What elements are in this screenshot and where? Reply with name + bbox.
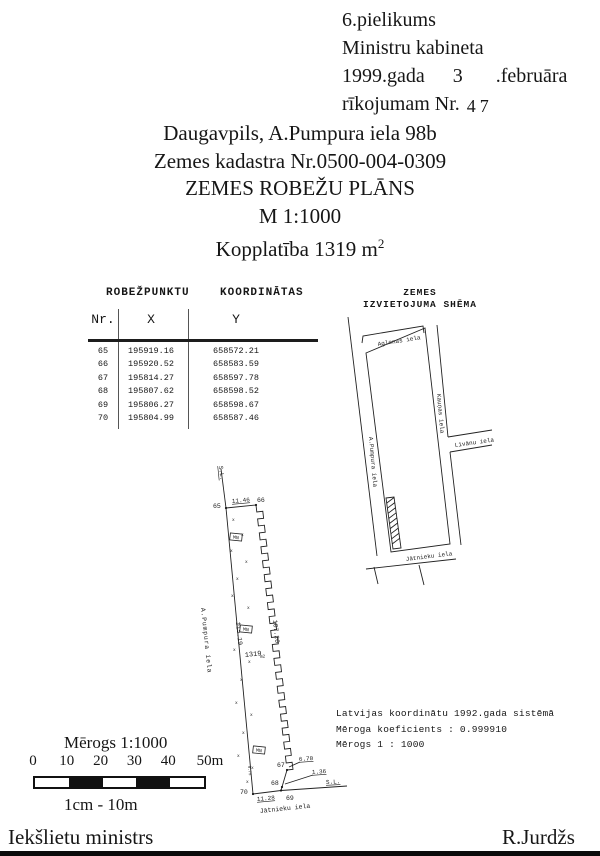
coordinates-table: ROBEŽPUNKTU KOORDINĀTAS Nr. X Y 65195919… (88, 285, 318, 433)
mn-label: MN (243, 627, 250, 634)
dimension-68-69: 1.36 (312, 768, 327, 776)
point-label-69: 69 (286, 795, 294, 802)
street-continuation-lines (374, 565, 424, 585)
table-cell: 658583.59 (200, 359, 272, 369)
scale-bar: Mērogs 1:1000 0 10 20 30 40 50m 1cm - 10… (30, 733, 250, 818)
scale-bar-graphic (33, 776, 206, 789)
plan-street-label-south: Jātnieku iela (259, 803, 310, 815)
mn-label: MN (256, 748, 263, 755)
table-row: 69195806.27658598.67 (88, 400, 318, 413)
x-mark: x (251, 766, 254, 771)
minister-name: R.Jurdžs (502, 825, 575, 850)
table-cell: 658597.78 (200, 373, 272, 383)
leader-line-68 (285, 775, 313, 784)
hatch-line (390, 523, 397, 529)
x-mark: x (235, 701, 238, 706)
hatch-line (387, 498, 394, 504)
scale-segment (103, 778, 137, 787)
x-mark: x (245, 560, 248, 565)
annex-date-line: 1999.gada3.februāra (342, 62, 567, 90)
boundary-point-65-dot (225, 507, 227, 509)
x-mark: x (240, 678, 243, 683)
table-cell: 195920.52 (122, 359, 180, 369)
boundary-edge-south (253, 791, 281, 795)
hatch-line (389, 513, 396, 519)
plan-street-label-west: A.Pumpura iela (199, 607, 213, 673)
table-cell: 195807.62 (122, 386, 180, 396)
table-cell: 658598.52 (200, 386, 272, 396)
table-caption: ROBEŽPUNKTU KOORDINĀTAS (106, 287, 304, 299)
area-superscript: 2 (378, 236, 385, 251)
boundary-marker-mn: MN (253, 746, 266, 755)
street-line-kaunas-east (437, 325, 461, 545)
street-label-livanu: Līvānu iela (454, 436, 495, 448)
x-mark: x (236, 577, 239, 582)
hatch-line (392, 538, 399, 544)
scale-segment (69, 778, 103, 787)
boundary-point-67-dot (286, 769, 288, 771)
area-unit-label: m2 (260, 653, 266, 660)
scale-tick: 20 (84, 753, 118, 770)
cadastre-line: Zemes kadastra Nr.0500-004-0309 (0, 148, 600, 176)
street-label-jatnieku: Jātnieku iela (405, 550, 453, 563)
table-row: 65195919.16658572.21 (88, 346, 318, 359)
scale-bar-title: Mērogs 1:1000 (64, 733, 167, 753)
dimension-67-68: 6.70 (299, 755, 314, 763)
scanned-document-page: 6.pielikums Ministru kabineta 1999.gada3… (0, 0, 600, 856)
survey-label-top: S.L. (217, 465, 225, 480)
date-prefix: 1999.gada (342, 65, 425, 87)
location-schema-drawing: Aglonas iela Kauņas iela Līvānu iela A.P… (340, 283, 600, 590)
boundary-point-66-dot (255, 504, 257, 506)
area-line: Kopplatība 1319 m2 (0, 230, 600, 264)
table-cell: 65 (90, 346, 116, 356)
annex-nr-line: rīkojumam Nr.47 (342, 90, 567, 118)
hatch-line (390, 518, 397, 524)
column-header-x: X (122, 312, 180, 327)
table-cell: 658587.46 (200, 413, 272, 423)
annex-line: Ministru kabineta (342, 34, 567, 62)
note-line: Mēroga koeficients : 0.999910 (336, 722, 554, 738)
column-header-y: Y (200, 312, 272, 327)
hatch-line (388, 508, 395, 514)
map-scale: M 1:1000 (0, 203, 600, 231)
scale-segment (35, 778, 69, 787)
table-cell: 195814.27 (122, 373, 180, 383)
point-label-68: 68 (271, 780, 279, 787)
survey-label-right: S.L. (326, 778, 341, 786)
date-day: 3 (453, 62, 463, 90)
table-row: 67195814.27658597.78 (88, 373, 318, 386)
note-line: Latvijas koordinātu 1992.gada sistēmā (336, 706, 554, 722)
x-mark: x (233, 648, 236, 653)
table-cell: 69 (90, 400, 116, 410)
point-label-65: 65 (213, 503, 221, 510)
scan-edge-artifact (0, 851, 600, 856)
scale-tick: 30 (117, 753, 151, 770)
hatch-line (392, 533, 399, 539)
mn-label: MN (233, 535, 240, 542)
point-label-66: 66 (257, 497, 265, 504)
table-cell: 195806.27 (122, 400, 180, 410)
scale-tick: 40 (151, 753, 185, 770)
table-row: 68195807.62658598.52 (88, 386, 318, 399)
boundary-edge-top (226, 505, 256, 508)
table-header-rule (88, 339, 318, 342)
x-mark: x (250, 713, 253, 718)
annex-line: 6.pielikums (342, 6, 567, 34)
table-cell: 70 (90, 413, 116, 423)
nr-value: 47 (467, 92, 493, 120)
x-mark: x (238, 623, 241, 628)
table-row: 70195804.99658587.46 (88, 413, 318, 426)
boundary-marker-mn: MN (240, 625, 253, 634)
table-cell: 195919.16 (122, 346, 180, 356)
scale-segment (170, 778, 204, 787)
subject-parcel-hatch (387, 498, 400, 544)
survey-line-right (281, 786, 347, 791)
hatch-line (391, 528, 398, 534)
point-label-67: 67 (277, 762, 285, 769)
scale-bar-caption: 1cm - 10m (64, 795, 138, 815)
minister-title: Iekšlietu ministrs (8, 825, 153, 850)
table-row: 66195920.52658583.59 (88, 359, 318, 372)
x-mark: x (248, 660, 251, 665)
table-cell: 67 (90, 373, 116, 383)
table-cell: 66 (90, 359, 116, 369)
area-value: Kopplatība 1319 m (216, 237, 378, 261)
boundary-point-70-dot (252, 793, 254, 795)
title-block: Daugavpils, A.Pumpura iela 98b Zemes kad… (0, 120, 600, 264)
note-line: Mērogs 1 : 1000 (336, 737, 554, 753)
hatch-line (387, 503, 394, 509)
boundary-point-68-dot (281, 786, 283, 788)
scale-tick: 10 (50, 753, 84, 770)
subject-parcel-outline (386, 497, 401, 549)
nr-prefix: rīkojumam Nr. (342, 93, 460, 115)
dimension-69-70: 11.28 (257, 794, 276, 803)
boundary-point-69-dot (280, 789, 282, 791)
table-cell: 658598.67 (200, 400, 272, 410)
table-cell: 195804.99 (122, 413, 180, 423)
x-mark: x (231, 594, 234, 599)
dimension-65-66: 11.46 (232, 496, 251, 505)
table-cell: 68 (90, 386, 116, 396)
scale-tick: 50m (188, 753, 232, 770)
annex-header: 6.pielikums Ministru kabineta 1999.gada3… (342, 6, 567, 118)
column-header-nr: Nr. (90, 312, 116, 327)
table-cell: 658572.21 (200, 346, 272, 356)
city-block-outline (366, 328, 450, 552)
x-mark: x (241, 533, 244, 538)
x-mark: x (232, 518, 235, 523)
dimension-66-67: 107.20 (271, 619, 280, 643)
x-mark: x (230, 549, 233, 554)
scale-segment (136, 778, 170, 787)
date-suffix: .februāra (496, 62, 568, 90)
plan-title: ZEMES ROBEŽU PLĀNS (0, 175, 600, 203)
coordinate-system-notes: Latvijas koordinātu 1992.gada sistēmā Mē… (336, 706, 554, 753)
street-label-pumpura: A.Pumpura iela (367, 437, 378, 488)
street-label-aglonas: Aglonas iela (377, 334, 421, 348)
scale-tick: 0 (16, 753, 50, 770)
address-line: Daugavpils, A.Pumpura iela 98b (0, 120, 600, 148)
x-mark: x (247, 606, 250, 611)
